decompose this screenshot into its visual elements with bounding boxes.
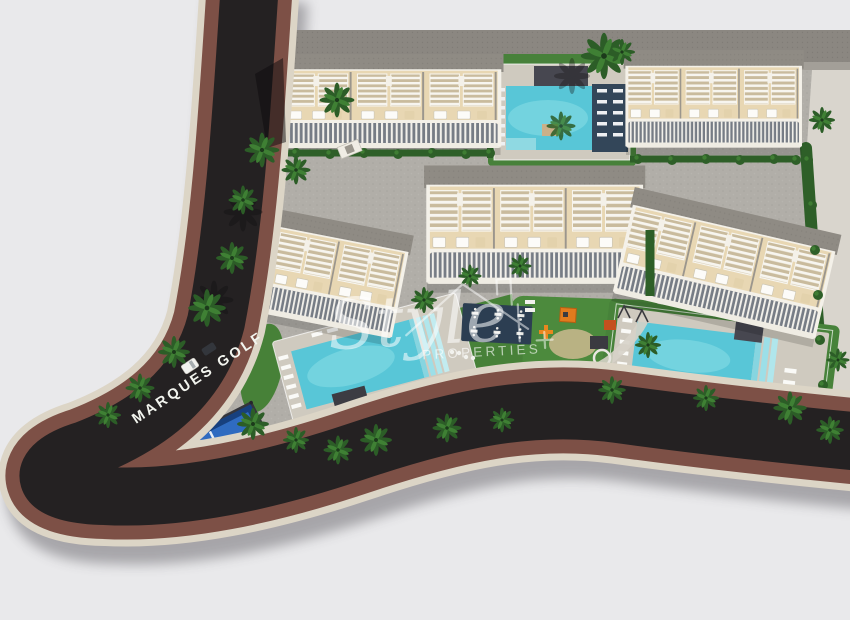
building-block-1 <box>280 54 503 155</box>
pool-top <box>488 54 636 166</box>
site-plan-canvas: MARQUES GOLF Style PROPERTIES <box>0 0 850 620</box>
play-slide <box>604 320 616 330</box>
pool-navy-deck <box>592 84 628 152</box>
play-box <box>590 336 608 349</box>
building-block-3 <box>424 165 645 292</box>
building-block-2 <box>624 50 804 155</box>
site-plan-render: MARQUES GOLF Style PROPERTIES <box>0 0 850 620</box>
